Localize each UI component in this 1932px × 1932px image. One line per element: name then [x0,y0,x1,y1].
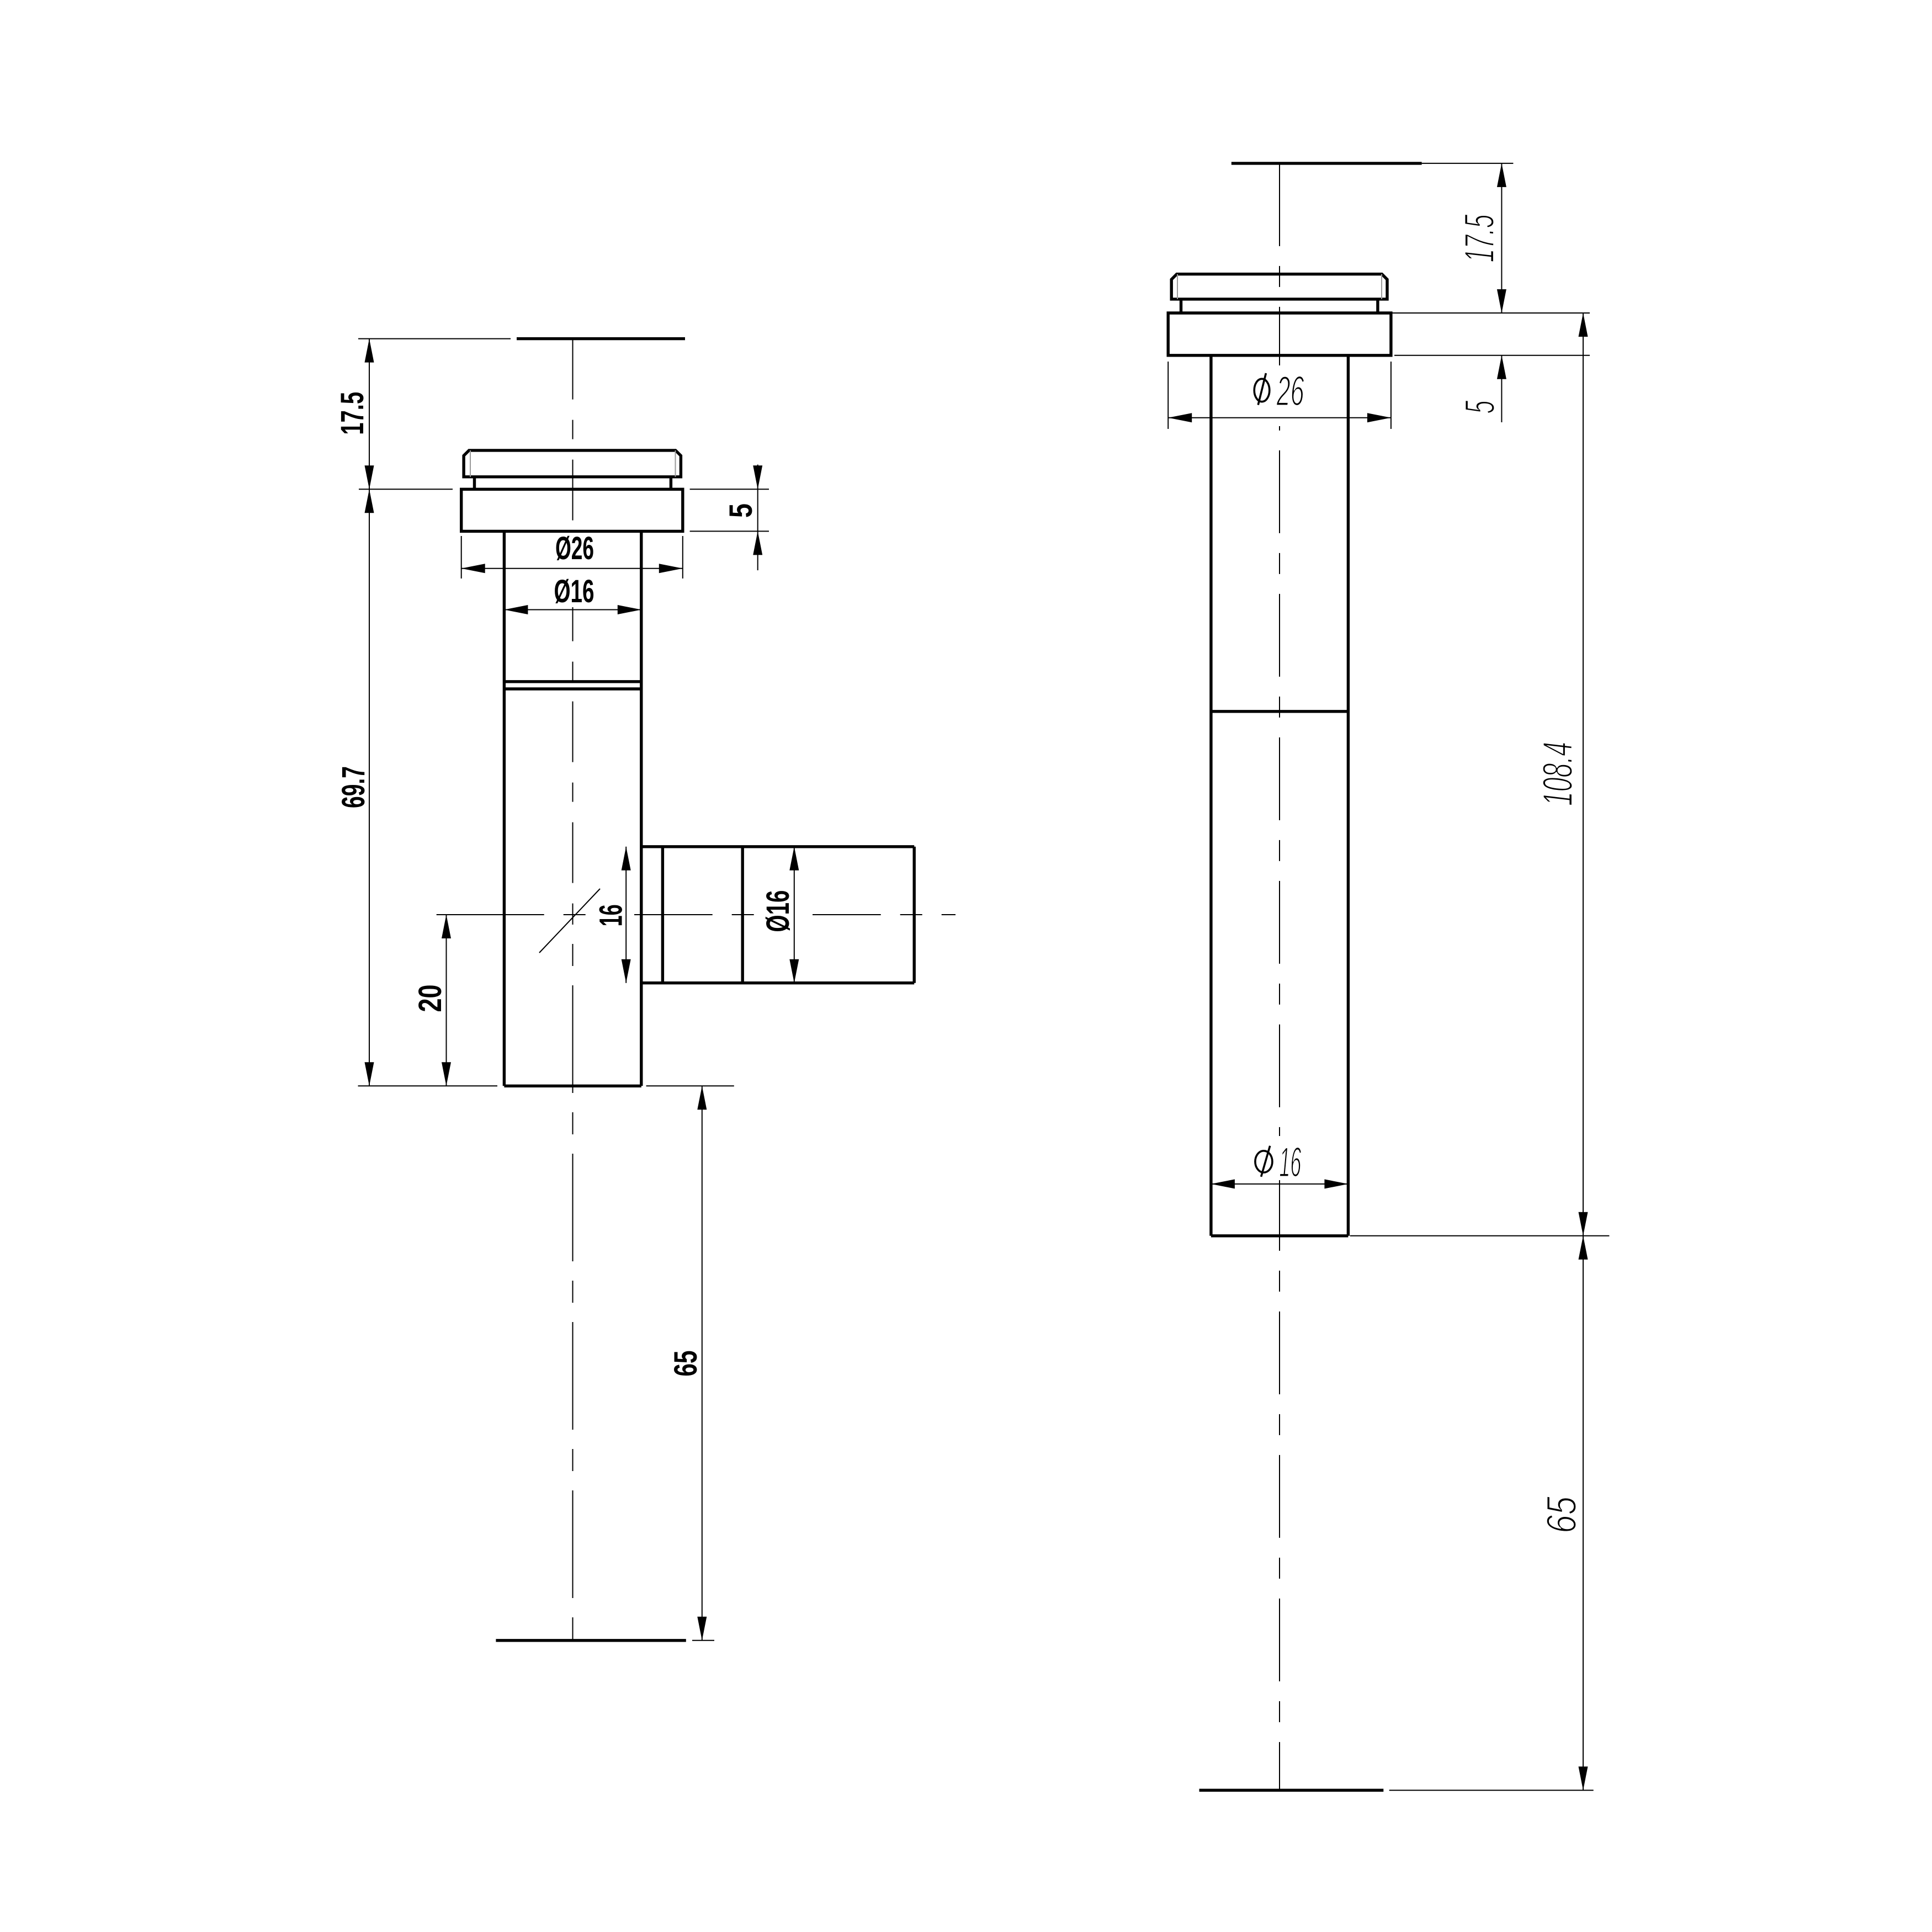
svg-text:Ø16: Ø16 [554,574,595,609]
svg-text:5: 5 [1457,400,1504,413]
svg-text:5: 5 [723,503,759,518]
svg-text:65: 65 [668,1351,704,1377]
svg-text:17.5: 17.5 [1456,214,1503,262]
svg-text:Ø26: Ø26 [555,530,594,566]
svg-text:108.4: 108.4 [1535,742,1581,806]
svg-text:Ø16: Ø16 [760,890,796,932]
svg-text:26: 26 [1276,368,1304,415]
svg-text:20: 20 [412,985,448,1012]
svg-text:16: 16 [593,904,629,926]
svg-text:16: 16 [1279,1139,1301,1186]
svg-text:17.5: 17.5 [335,392,370,435]
svg-text:69.7: 69.7 [336,766,371,808]
svg-text:65: 65 [1538,1496,1585,1533]
